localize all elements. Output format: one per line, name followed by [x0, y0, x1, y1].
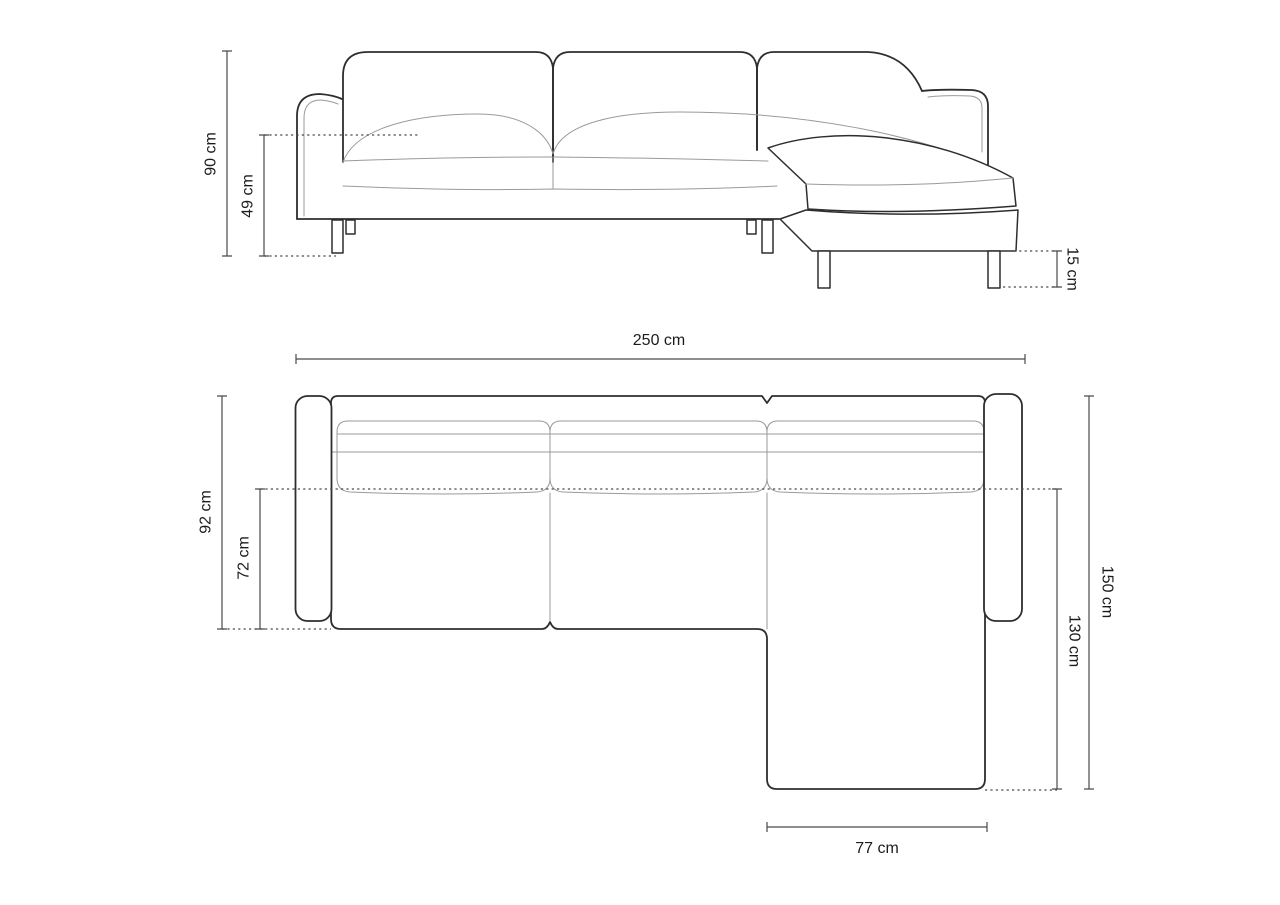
dim-label-leg-height: 15 cm [1064, 247, 1081, 291]
dim-label-inner-seat-depth: 72 cm [236, 536, 253, 580]
plan-right-armrest [984, 394, 1022, 621]
front-chaise-base [780, 210, 1018, 251]
front-back-cushion-left [343, 52, 553, 162]
dim-line-seat-height [259, 135, 269, 256]
dim-label-overall-height: 90 cm [203, 132, 220, 176]
dim-label-chaise-width: 77 cm [855, 840, 899, 857]
front-seat-front-edge [343, 157, 768, 161]
front-right-back-leg [747, 220, 756, 234]
dim-label-chaise-extension-depth: 130 cm [1066, 615, 1083, 667]
front-chaise-left-leg [818, 251, 830, 288]
plan-view: 250 cm 92 cm 72 cm 150 cm 130 cm 77 cm [198, 332, 1116, 857]
front-right-arm-inner-line [928, 96, 982, 152]
dim-line-leg-height [1052, 251, 1062, 287]
dim-line-inner-seat-depth [255, 489, 265, 629]
dim-label-seat-height: 49 cm [240, 174, 257, 218]
plan-body-outline [331, 396, 985, 789]
front-left-front-leg [332, 220, 343, 253]
front-left-arm-inner-line [304, 100, 338, 216]
plan-left-armrest [296, 396, 332, 621]
dim-line-chaise-width [767, 822, 987, 832]
dim-line-chaise-overall-depth [1084, 396, 1094, 789]
dim-line-overall-depth [217, 396, 227, 629]
front-seat-cushion-left-arc [343, 114, 553, 162]
front-chaise-right-leg [988, 251, 1000, 288]
front-view: 90 cm 49 cm 15 cm [203, 51, 1081, 291]
dim-label-chaise-overall-depth: 150 cm [1099, 566, 1116, 618]
front-chaise [768, 136, 1018, 251]
front-right-front-leg [762, 220, 773, 253]
drawing-canvas: 90 cm 49 cm 15 cm [0, 0, 1280, 905]
front-left-back-leg [346, 220, 355, 234]
front-back-cushion-middle [553, 52, 757, 162]
front-chaise-cushion [768, 136, 1016, 212]
dim-label-overall-depth: 92 cm [198, 490, 215, 534]
dim-line-chaise-extension-depth [1052, 489, 1062, 789]
dim-line-overall-width [296, 354, 1025, 364]
dim-label-overall-width: 250 cm [633, 332, 685, 349]
front-under-cushion-seam [343, 186, 777, 190]
dim-line-overall-height [222, 51, 232, 256]
sofa-dimension-drawing: 90 cm 49 cm 15 cm [0, 0, 1280, 905]
